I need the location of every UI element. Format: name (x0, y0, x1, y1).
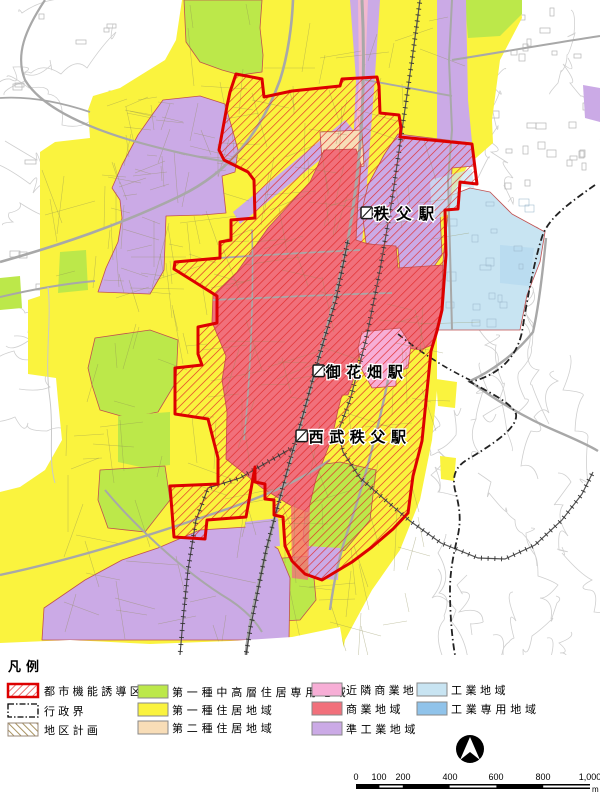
svg-text:凡例: 凡例 (8, 659, 44, 674)
svg-text:100: 100 (371, 772, 386, 782)
svg-text:西武秩父駅: 西武秩父駅 (309, 428, 412, 446)
svg-text:商業地域: 商業地域 (346, 702, 404, 716)
svg-text:1,000: 1,000 (579, 772, 600, 782)
svg-text:工業地域: 工業地域 (451, 684, 509, 697)
svg-text:第二種住居地域: 第二種住居地域 (172, 721, 276, 735)
svg-text:第一種住居地域: 第一種住居地域 (172, 703, 276, 717)
svg-text:600: 600 (488, 772, 503, 782)
svg-text:秩父駅: 秩父駅 (374, 204, 442, 223)
svg-text:地区計画: 地区計画 (44, 723, 101, 737)
svg-text:0: 0 (353, 772, 358, 782)
svg-text:行政界: 行政界 (44, 704, 87, 718)
svg-text:御花畑駅: 御花畑駅 (325, 363, 409, 381)
svg-text:工業専用地域: 工業専用地域 (451, 703, 540, 716)
svg-text:200: 200 (395, 772, 410, 782)
svg-text:800: 800 (535, 772, 550, 782)
svg-text:400: 400 (442, 772, 457, 782)
svg-text:m: m (592, 785, 599, 794)
svg-text:準工業地域: 準工業地域 (346, 722, 419, 736)
